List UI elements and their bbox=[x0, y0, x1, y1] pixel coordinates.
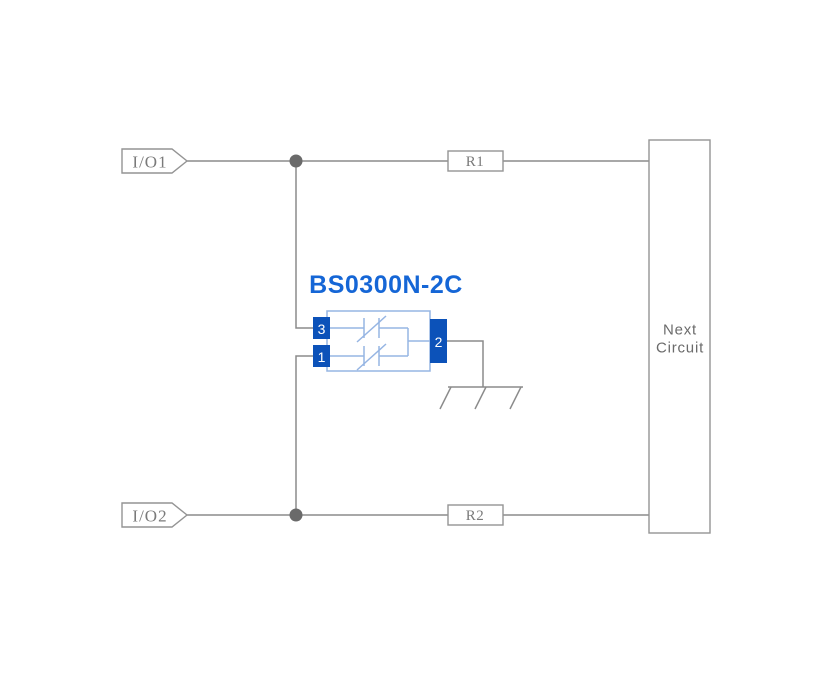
io1-port-tag: I/O1 bbox=[122, 149, 187, 173]
wire-pin1-to-junction-bottom bbox=[296, 356, 313, 515]
pin-2: 2 bbox=[430, 319, 447, 363]
next-circuit-label-line1: Next bbox=[663, 322, 697, 339]
wire-junction-top-to-pin3 bbox=[296, 161, 313, 328]
junction-dot-top bbox=[290, 155, 303, 168]
pin2-number: 2 bbox=[435, 334, 443, 350]
next-circuit-label-line2: Circuit bbox=[656, 340, 704, 357]
wire-pin2-to-ground bbox=[447, 341, 483, 387]
component-title: BS0300N-2C bbox=[309, 271, 463, 299]
pin-3: 3 bbox=[313, 317, 330, 339]
junction-dot-bottom bbox=[290, 509, 303, 522]
r1-label: R1 bbox=[466, 154, 485, 170]
resistor-r2: R2 bbox=[448, 505, 503, 525]
io2-port-tag: I/O2 bbox=[122, 503, 187, 527]
circuit-schematic: I/O1 I/O2 R1 R2 Next Circuit BS0300N-2C bbox=[0, 0, 832, 675]
ground-symbol bbox=[440, 387, 523, 409]
ground-hatch-3 bbox=[510, 387, 521, 409]
pin3-number: 3 bbox=[318, 321, 326, 337]
ground-hatch-2 bbox=[475, 387, 486, 409]
r2-label: R2 bbox=[466, 508, 485, 524]
pin-1: 1 bbox=[313, 345, 330, 367]
io1-label: I/O1 bbox=[132, 153, 167, 172]
io2-label: I/O2 bbox=[132, 507, 167, 526]
next-circuit-block: Next Circuit bbox=[649, 140, 710, 533]
component-bs0300n-2c: BS0300N-2C 3 1 bbox=[309, 271, 463, 371]
ground-hatch-1 bbox=[440, 387, 451, 409]
resistor-r1: R1 bbox=[448, 151, 503, 171]
pin1-number: 1 bbox=[318, 349, 326, 365]
